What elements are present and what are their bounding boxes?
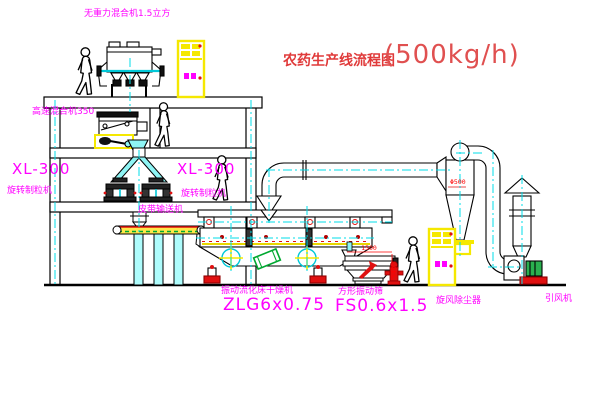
process-flow-diagram: 1500 540 Φ500 农药生产线流程图 (500kg/h) 无重力混合机1… <box>0 0 600 403</box>
floor-beam-mid <box>50 148 256 158</box>
person-ground <box>404 237 420 282</box>
fan-motor <box>526 261 542 276</box>
diagram-title: 农药生产线流程图 <box>283 50 395 70</box>
diagram-capacity: (500kg/h) <box>384 40 520 70</box>
label-fan: 引风机 <box>545 295 572 304</box>
sieve-width-dim: 1500 <box>361 244 377 252</box>
label-dryer-model: ZLG6x0.75 <box>223 297 325 314</box>
label-mill-left-name: 旋转制粒机 <box>7 187 52 196</box>
induced-draft-fan <box>504 256 547 284</box>
person-top-floor <box>76 48 92 95</box>
conveyor-leg <box>174 234 183 285</box>
label-sieve-model: FS0.6x1.5 <box>335 298 428 315</box>
control-cabinet-upper <box>178 41 204 97</box>
granulator-right <box>140 178 173 201</box>
cyclone-dim: Φ500 <box>450 178 466 186</box>
belt-conveyor <box>113 226 208 285</box>
label-cyclone: 旋风除尘器 <box>436 297 481 306</box>
label-mill-left-model: XL-300 <box>12 162 70 177</box>
cyclone-inlet-taper <box>437 157 446 191</box>
label-gravity-mixer: 无重力混合机1.5立方 <box>84 10 170 19</box>
dryer-foot-left <box>204 265 220 283</box>
control-cabinet-ground <box>429 229 455 285</box>
conveyor-leg <box>154 234 163 285</box>
label-mill-right-name: 旋转制粒机 <box>181 190 226 199</box>
label-mill-right-model: XL-300 <box>177 162 235 177</box>
label-high-speed-mixer: 高速混合机350 <box>32 108 94 117</box>
high-speed-mixer <box>95 112 148 152</box>
granulator-left <box>104 178 137 201</box>
label-belt-conveyor: 皮带输送机 <box>138 206 183 215</box>
sieve-height-dim: 540 <box>390 266 398 278</box>
dryer-foot-right <box>310 265 326 283</box>
conveyor-leg <box>134 234 143 285</box>
fan-base <box>520 277 547 284</box>
